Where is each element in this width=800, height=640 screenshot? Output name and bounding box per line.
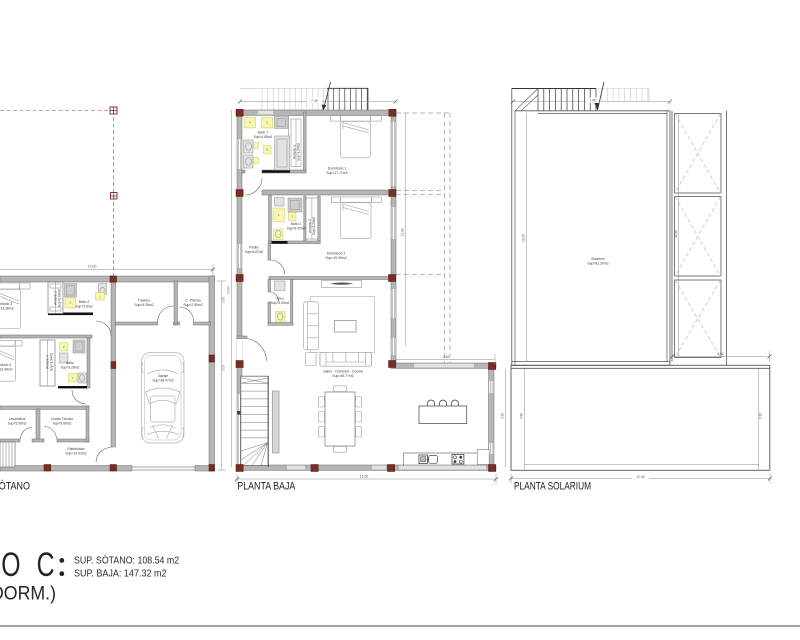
svg-text:Dormitorio 4: Dormitorio 4: [0, 363, 11, 367]
svg-text:Lavandería: Lavandería: [9, 417, 26, 421]
svg-text:Sup=45.77m2: Sup=45.77m2: [332, 374, 353, 378]
svg-text:Sup=10.02m2: Sup=10.02m2: [65, 452, 86, 456]
svg-text:Sup=13.38m2: Sup=13.38m2: [0, 307, 14, 311]
svg-text:7.40: 7.40: [311, 99, 318, 103]
svg-text:Trastero: Trastero: [138, 299, 151, 303]
svg-text:C. Piscina: C. Piscina: [185, 299, 200, 303]
svg-text:Sup=1.34m2: Sup=1.34m2: [50, 353, 54, 371]
svg-text:Solarium: Solarium: [591, 257, 605, 261]
svg-text:Sup=0.60m2: Sup=0.60m2: [58, 289, 62, 307]
svg-text:SUP. SÓTANO: 108.54 m2: SUP. SÓTANO: 108.54 m2: [74, 554, 179, 567]
svg-text:Sup=3.09m2: Sup=3.09m2: [271, 301, 290, 305]
svg-text:4.60: 4.60: [443, 355, 450, 359]
svg-text:PLANTA SOLARIUM: PLANTA SOLARIUM: [514, 480, 591, 492]
svg-text:11.80: 11.80: [401, 228, 405, 236]
svg-text:Sup=3.28m2: Sup=3.28m2: [61, 366, 80, 370]
svg-text:PLANTA SÓTANO: PLANTA SÓTANO: [0, 479, 30, 492]
svg-text:Sup=5.42m2: Sup=5.42m2: [287, 226, 306, 230]
svg-text:Baño 2: Baño 2: [79, 300, 90, 304]
svg-text:Sup=13.48m2: Sup=13.48m2: [0, 368, 13, 372]
svg-text:Sup=9.28m2: Sup=9.28m2: [134, 303, 153, 307]
svg-text:Pasillo: Pasillo: [249, 246, 259, 250]
svg-text:Sup=2.95m2: Sup=2.95m2: [183, 303, 202, 307]
svg-text:Sup=81.20m2: Sup=81.20m2: [587, 262, 608, 266]
svg-text:Distribuidor: Distribuidor: [67, 447, 85, 451]
svg-text:C: C: [37, 546, 55, 584]
svg-text:PLANTA BAJA: PLANTA BAJA: [237, 480, 295, 492]
svg-text:9.04: 9.04: [222, 365, 226, 371]
svg-text:3.30: 3.30: [501, 413, 505, 419]
svg-text:4.80: 4.80: [520, 413, 524, 419]
svg-text:14.60: 14.60: [227, 286, 231, 294]
svg-text:Sup=6.87m2: Sup=6.87m2: [245, 250, 264, 254]
svg-text:Sup=3.8m2: Sup=3.8m2: [76, 305, 93, 309]
svg-text:Dormitorio 3: Dormitorio 3: [0, 302, 12, 306]
svg-text:Salón - Comedor - Cocina: Salón - Comedor - Cocina: [323, 370, 362, 374]
svg-text:4.60: 4.60: [717, 352, 724, 356]
svg-text:2.60: 2.60: [222, 297, 226, 303]
svg-text:Dormitorio 2: Dormitorio 2: [327, 252, 346, 256]
svg-text:Sup=19.49m2: Sup=19.49m2: [325, 256, 346, 260]
svg-text:Sup=5.99m2: Sup=5.99m2: [53, 422, 72, 426]
svg-text:1.40: 1.40: [589, 99, 596, 103]
svg-text:11.80: 11.80: [674, 230, 678, 238]
svg-text:Garaje: Garaje: [158, 374, 168, 378]
svg-text:Sup=1.24m2: Sup=1.24m2: [297, 143, 301, 161]
svg-text:Sup=38.47m2: Sup=38.47m2: [152, 379, 173, 383]
svg-text:SUP. BAJA: 147.32 m2: SUP. BAJA: 147.32 m2: [74, 568, 167, 579]
svg-text:Cuarto Técnico: Cuarto Técnico: [51, 417, 73, 421]
svg-text:12.00: 12.00: [636, 475, 645, 479]
svg-text:12.00: 12.00: [88, 265, 97, 269]
svg-text:DORM.): DORM.): [0, 583, 56, 605]
svg-text:12.00: 12.00: [522, 234, 526, 242]
svg-text:12.00: 12.00: [360, 475, 369, 479]
svg-text:Sup=4.89m2: Sup=4.89m2: [254, 135, 273, 139]
svg-text:Dormitorio 1: Dormitorio 1: [328, 167, 347, 171]
svg-text:Sup=17.71m2: Sup=17.71m2: [326, 171, 347, 175]
svg-text:Sup=5.99m2: Sup=5.99m2: [8, 422, 27, 426]
svg-text:O: O: [1, 546, 20, 584]
svg-text:3.30: 3.30: [759, 413, 763, 419]
svg-text:Baño: Baño: [66, 361, 74, 365]
svg-text:Sup=1.24m2: Sup=1.24m2: [312, 217, 316, 235]
